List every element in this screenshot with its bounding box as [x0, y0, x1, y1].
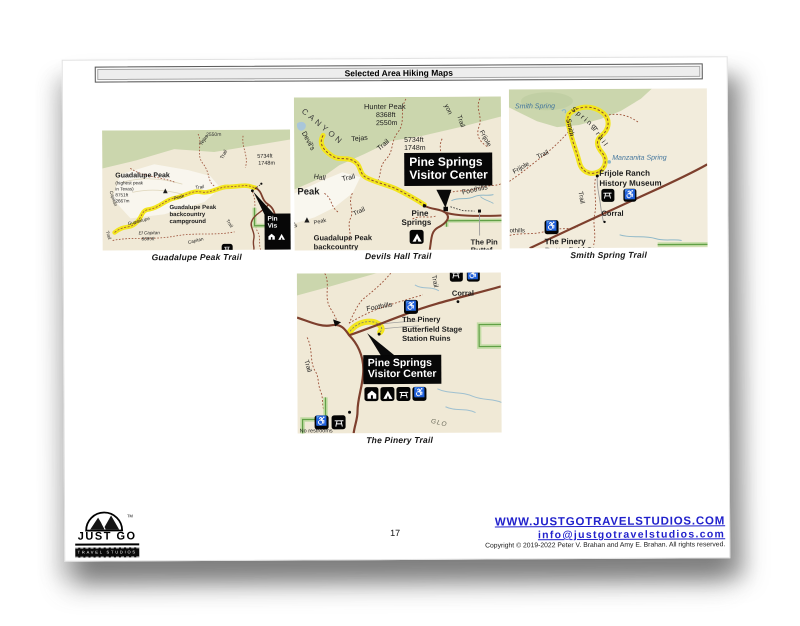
wheelchair-glyph: ♿	[316, 418, 328, 428]
label-foothills-cut: othills	[510, 228, 525, 234]
callout-line-1: Pin	[268, 215, 291, 222]
visitor-center-callout-clipped: Pin Vis	[264, 213, 290, 250]
caption-devils: Devils Hall Trail	[295, 250, 502, 261]
logo-brand-text: JUST GO	[75, 530, 139, 545]
label-peak-ft: 8751ft	[115, 193, 128, 198]
brand-logo: TM JUST GO TRAVEL STUDIOS	[74, 510, 146, 556]
label-smith-spring: Smith Spring	[515, 103, 555, 110]
map-devils-hall-trail: CANYON Hunter Peak 8368ft 2550m Tejas Tr…	[294, 96, 502, 250]
label-el-capitan-ft: 8085ft	[142, 237, 155, 242]
label-tejas: Tejas	[351, 135, 368, 143]
wheelchair-glyph: ♿	[467, 272, 479, 279]
campground-icon	[410, 230, 424, 244]
restroom-icon	[222, 244, 233, 251]
logo-tagline: TRAVEL STUDIOS	[75, 547, 139, 557]
map-smith-spring-trail: Smith Spring Spring Trail Smith Frijole …	[509, 88, 708, 248]
wheelchair-icon: ♿	[545, 220, 559, 234]
label-guadalupe-peak: Guadalupe Peak	[115, 172, 170, 179]
wheelchair-icon: ♿	[404, 300, 418, 314]
label-campground-3: campground	[170, 219, 206, 225]
label-pinery-2: Butterfield Stage	[402, 325, 462, 333]
label-elev-1748: 1748m	[404, 145, 425, 152]
wheelchair-icon: ♿	[412, 387, 426, 401]
trademark-symbol: TM	[127, 513, 133, 518]
label-trail-trail: Trail	[195, 185, 204, 191]
label-backcountry-1: Guadalupe Peak	[314, 234, 372, 242]
campsite-icon: ▲	[303, 215, 312, 224]
map-guadalupe-peak-trail: 2550m Tejas Trail 5734ft 1748m Guadalupe…	[102, 130, 291, 251]
page-header-bar: Selected Area Hiking Maps	[95, 63, 703, 82]
label-peak-note1: (highest peak	[115, 181, 143, 186]
label-corral: Corral	[452, 290, 474, 298]
page-number: 17	[365, 528, 425, 538]
label-el-capitan: El Capitan	[139, 231, 160, 236]
picnic-icon	[396, 387, 410, 401]
label-peak: Peak	[297, 187, 319, 197]
label-pine: Pine	[411, 210, 428, 218]
lodging-icon	[268, 232, 276, 240]
label-trail-vertical: Trail	[576, 191, 585, 204]
label-trail-top: Trail	[429, 275, 438, 288]
page-title: Selected Area Hiking Maps	[345, 68, 453, 79]
lodging-icon	[364, 387, 378, 401]
label-campground-2: backcountry	[169, 212, 205, 218]
campground-icon	[380, 387, 394, 401]
label-corral: Corral	[601, 210, 623, 218]
label-ranch-2: History Museum	[599, 179, 661, 187]
label-no-restrooms: No restrooms	[300, 429, 333, 434]
caption-guadalupe: Guadalupe Peak Trail	[103, 252, 291, 263]
callout-line-2: Vis	[268, 223, 291, 230]
label-hunter-m: 2550m	[376, 120, 397, 127]
label-campground-1: Guadalupe Peak	[169, 205, 216, 211]
label-pinery-3: Station Ruins	[402, 335, 450, 343]
caption-smith: Smith Spring Trail	[510, 249, 708, 260]
caption-pinery: The Pinery Trail	[298, 434, 502, 445]
label-pinery-2: Butterfield Stage	[545, 246, 609, 248]
map-the-pinery-trail: Trail ♿ Corral Foothills ♿ The Pinery Bu…	[297, 272, 502, 433]
document-page: Selected Area Hiking Maps 2550m	[62, 56, 731, 561]
copyright-text: Copyright © 2019-2022 Peter V. Brahan an…	[485, 540, 725, 551]
picnic-icon	[601, 189, 614, 202]
wheelchair-glyph: ♿	[624, 190, 636, 200]
website-link[interactable]: WWW.JUSTGOTRAVELSTUDIOS.COM	[485, 515, 725, 529]
label-backcountry-2: backcountry	[314, 243, 359, 251]
label-pinery-1: The Pinery	[545, 238, 586, 246]
label-manzanita: Manzanita Spring	[612, 155, 667, 162]
visitor-center-callout: Pine Springs Visitor Center	[363, 355, 441, 384]
label-hunter-peak: Hunter Peak	[364, 103, 406, 111]
label-hunter-ft: 8368ft	[376, 112, 396, 119]
mountain-dome-icon	[84, 510, 124, 531]
campsite-icon: ▲	[161, 187, 169, 195]
label-elev-1748: 1748m	[258, 162, 275, 168]
wheelchair-icon: ♿	[315, 415, 329, 429]
wheelchair-glyph: ♿	[413, 389, 425, 399]
footer-links: WWW.JUSTGOTRAVELSTUDIOS.COM info@justgot…	[485, 515, 725, 551]
wheelchair-icon: ♿	[467, 272, 480, 281]
wheelchair-glyph: ♿	[405, 302, 417, 312]
label-peak-note2: in Texas)	[115, 187, 133, 192]
wheelchair-icon: ♿	[623, 189, 636, 202]
campground-icon	[278, 232, 286, 240]
callout-line-2: Visitor Center	[409, 169, 488, 183]
picnic-icon	[450, 272, 463, 281]
wheelchair-glyph: ♿	[546, 222, 558, 232]
label-pinery-1: The Pinery	[402, 316, 440, 324]
callout-line-2: Visitor Center	[368, 369, 437, 381]
visitor-center-callout: Pine Springs Visitor Center	[404, 152, 493, 185]
label-elev-5734: 5734ft	[404, 137, 424, 144]
label-ranch-1: Frijole Ranch	[599, 170, 650, 178]
label-springs: Springs	[402, 219, 432, 227]
picnic-icon	[332, 415, 346, 429]
label-elev-5734: 5734ft	[257, 155, 272, 161]
